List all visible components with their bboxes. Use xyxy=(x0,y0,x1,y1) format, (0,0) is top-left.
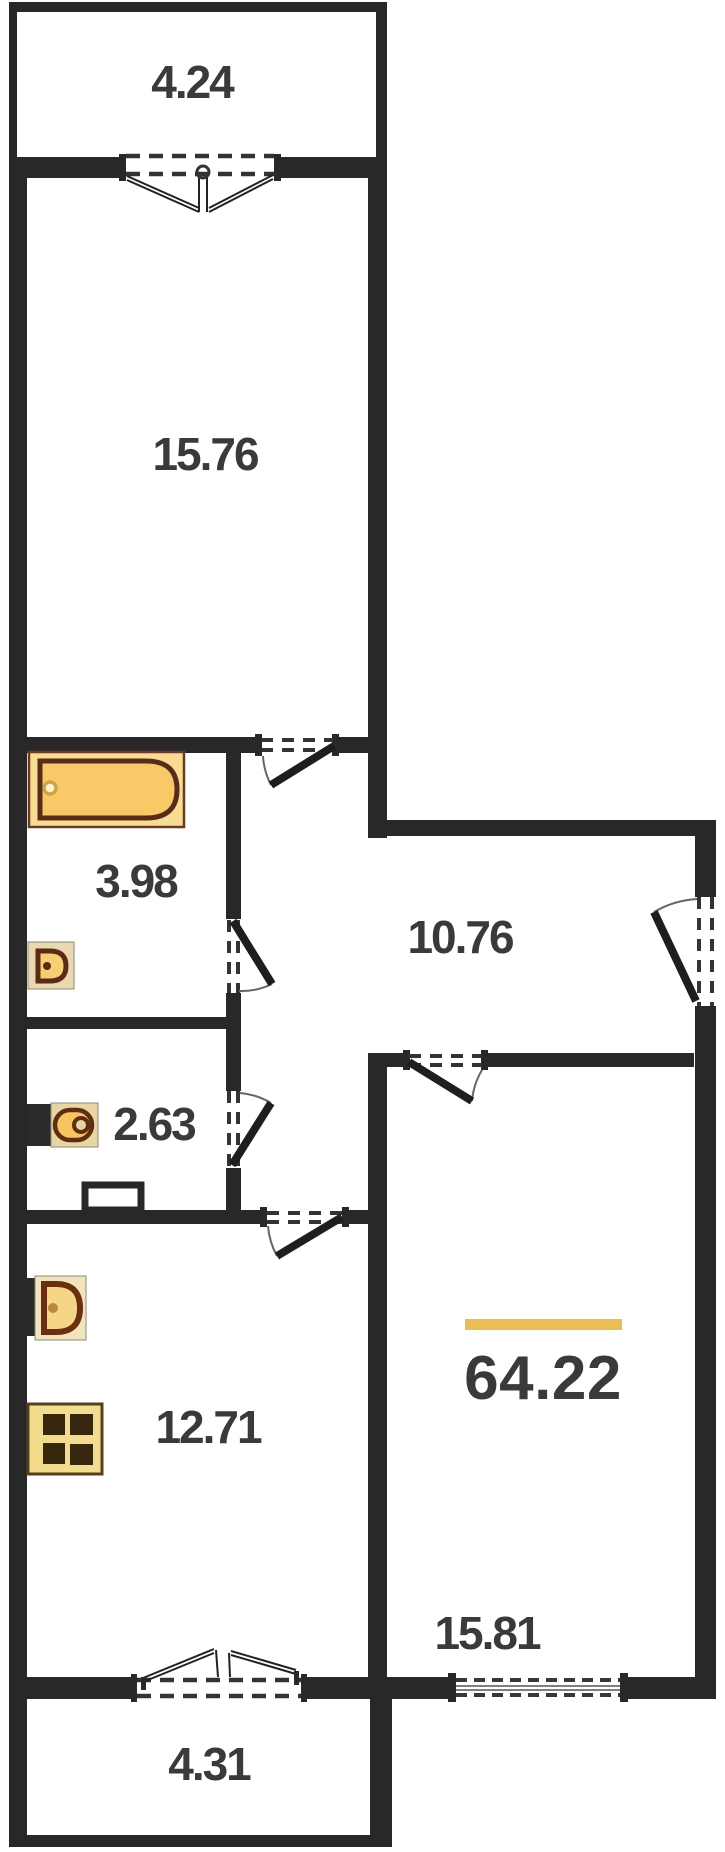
svg-text:15.76: 15.76 xyxy=(152,428,258,480)
svg-text:12.71: 12.71 xyxy=(155,1401,262,1453)
svg-text:10.76: 10.76 xyxy=(407,911,513,963)
svg-text:4.24: 4.24 xyxy=(151,56,235,108)
svg-text:3.98: 3.98 xyxy=(95,855,178,907)
svg-text:15.81: 15.81 xyxy=(434,1607,541,1659)
svg-text:2.63: 2.63 xyxy=(113,1098,195,1150)
svg-text:64.22: 64.22 xyxy=(464,1344,622,1413)
svg-text:4.31: 4.31 xyxy=(168,1738,251,1790)
